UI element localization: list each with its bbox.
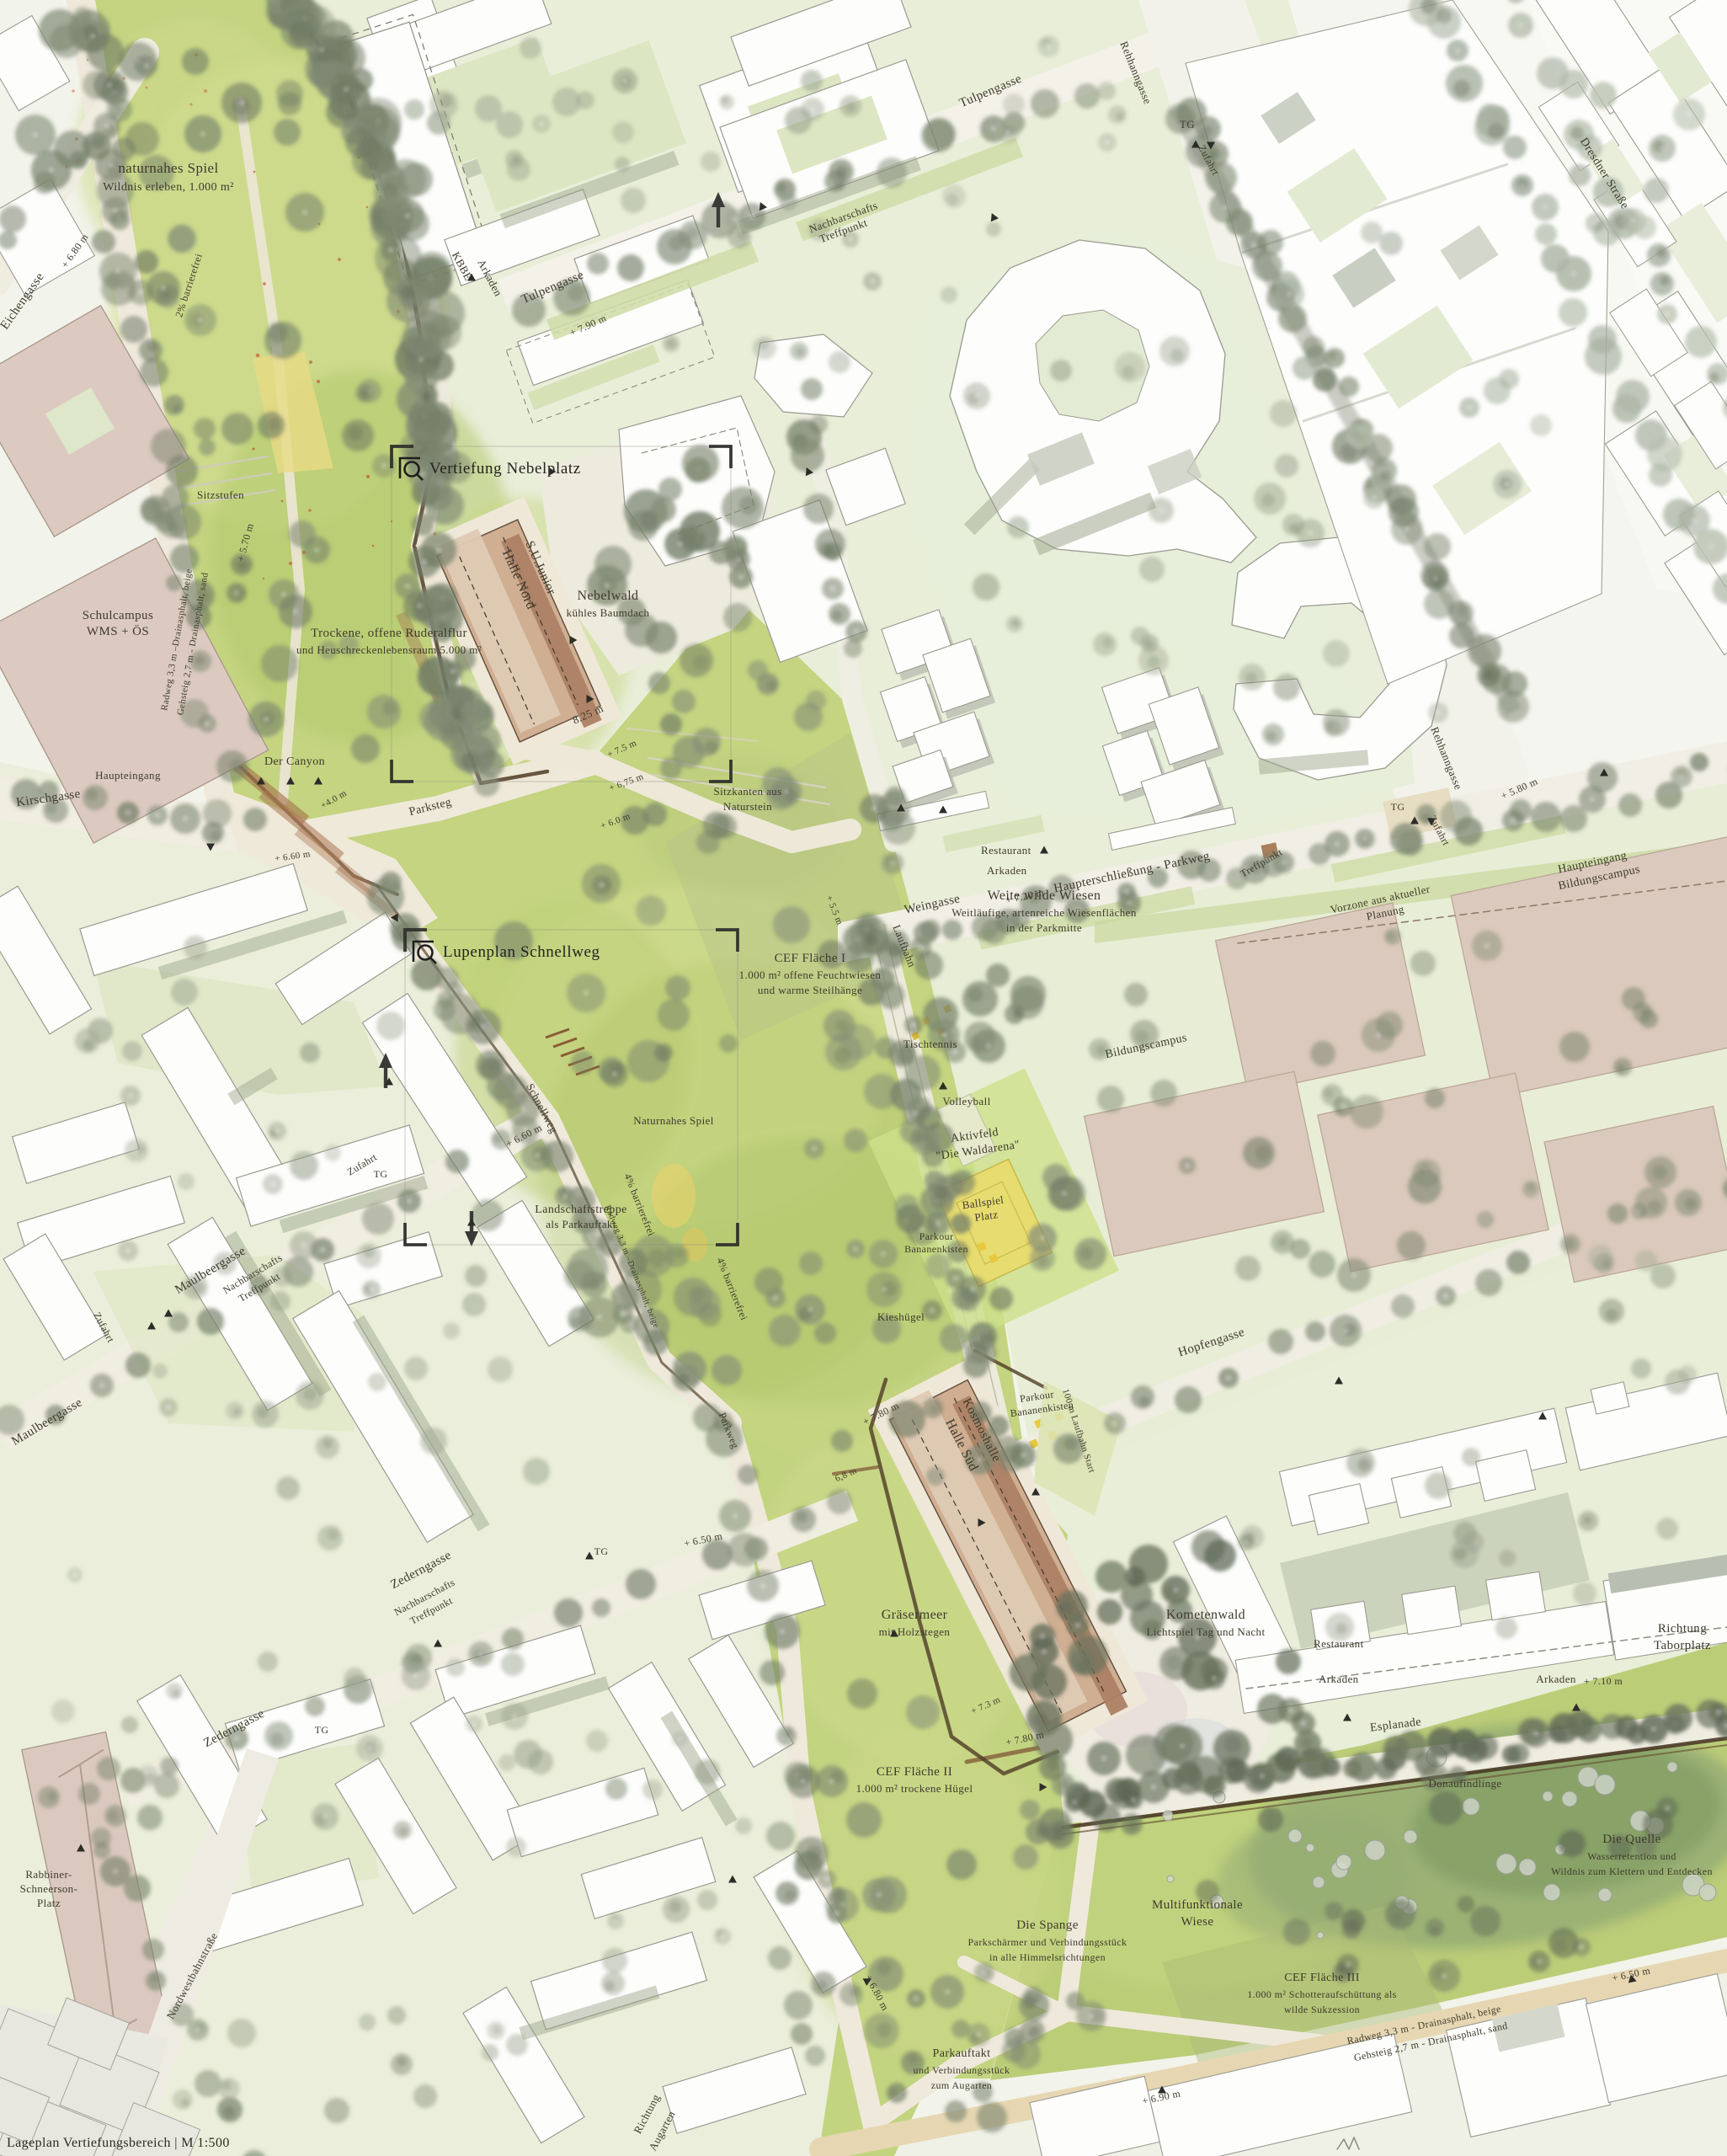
svg-text:wilde Sukzession: wilde Sukzession [1284,2004,1360,2015]
svg-text:und warme Steilhänge: und warme Steilhänge [758,984,862,996]
svg-text:Schneerson-: Schneerson- [20,1882,78,1895]
svg-text:Schulcampus: Schulcampus [83,609,153,622]
svg-text:Multifunktionale: Multifunktionale [1152,1898,1243,1912]
svg-text:Wildnis zum Klettern und Entde: Wildnis zum Klettern und Entdecken [1551,1865,1713,1877]
svg-text:Vertiefung Nebelplatz: Vertiefung Nebelplatz [429,460,581,478]
svg-text:Restaurant: Restaurant [981,844,1031,857]
svg-text:Wildnis erleben, 1.000 m²: Wildnis erleben, 1.000 m² [103,181,234,194]
svg-text:TG: TG [1391,801,1405,813]
svg-text:Donaufindlinge: Donaufindlinge [1428,1777,1501,1790]
svg-text:Naturnahes Spiel: Naturnahes Spiel [633,1114,714,1127]
svg-text:CEF Fläche II: CEF Fläche II [877,1765,952,1779]
svg-text:1.000 m² Schotteraufschüttung: 1.000 m² Schotteraufschüttung als [1247,1988,1396,2000]
svg-text:und Heuschreckenlebensraum 5.0: und Heuschreckenlebensraum 5.000 m² [296,643,482,656]
svg-text:Die Quelle: Die Quelle [1602,1833,1660,1846]
svg-text:Der Canyon: Der Canyon [264,755,325,768]
svg-text:WMS + ÖS: WMS + ÖS [87,624,149,638]
svg-text:Sitzkanten aus: Sitzkanten aus [713,785,781,798]
svg-text:naturnahes Spiel: naturnahes Spiel [118,160,218,176]
svg-text:Parkour: Parkour [919,1230,954,1242]
svg-text:CEF Fläche I: CEF Fläche I [775,952,846,965]
svg-text:Bananenkisten: Bananenkisten [904,1243,968,1255]
svg-text:Kieshügel: Kieshügel [877,1310,925,1323]
svg-text:CEF Fläche III: CEF Fläche III [1284,1972,1360,1984]
svg-text:1.000 m² trockene Hügel: 1.000 m² trockene Hügel [856,1782,973,1795]
svg-text:TG: TG [1180,118,1195,131]
svg-text:+ 7.10 m: + 7.10 m [1584,1675,1623,1687]
svg-text:Weite wilde Wiesen: Weite wilde Wiesen [988,889,1101,903]
svg-text:Wiese: Wiese [1181,1915,1214,1929]
svg-text:1.000 m² offene Feuchtwiesen: 1.000 m² offene Feuchtwiesen [739,969,882,981]
svg-text:Arkaden: Arkaden [1319,1673,1359,1685]
svg-text:in der Parkmitte: in der Parkmitte [1006,921,1082,934]
svg-text:Volleyball: Volleyball [942,1095,990,1107]
svg-text:Lupenplan Schnellweg: Lupenplan Schnellweg [443,943,600,961]
svg-text:Arkaden: Arkaden [1536,1673,1576,1685]
svg-text:Naturstein: Naturstein [723,800,772,813]
svg-text:Gräsermeer: Gräsermeer [882,1608,948,1622]
svg-text:Lageplan Vertiefungsbereich |: Lageplan Vertiefungsbereich | M 1:500 [7,2136,230,2150]
svg-text:Trockene, offene Ruderalflur: Trockene, offene Ruderalflur [311,627,467,640]
svg-text:TG: TG [315,1724,329,1736]
svg-text:Haupteingang: Haupteingang [95,769,161,782]
svg-text:und Verbindungsstück: und Verbindungsstück [914,2064,1010,2076]
svg-text:zum Augarten: zum Augarten [931,2079,992,2091]
svg-text:Parkschärmer und Verbindungsst: Parkschärmer und Verbindungsstück [968,1936,1127,1948]
svg-text:Sitzstufen: Sitzstufen [197,488,244,501]
svg-text:Wasserretention und: Wasserretention und [1587,1850,1676,1862]
svg-text:Weitläufige, artenreiche Wiese: Weitläufige, artenreiche Wiesenflächen [951,906,1137,919]
svg-text:Die Spange: Die Spange [1016,1919,1079,1932]
svg-text:TG: TG [594,1545,609,1557]
svg-text:Nebelwald: Nebelwald [578,589,639,603]
svg-text:Tischtennis: Tischtennis [903,1038,957,1050]
svg-text:Platz: Platz [37,1897,61,1909]
svg-text:Taborplatz: Taborplatz [1654,1639,1711,1652]
svg-text:Lichtspiel Tag und Nacht: Lichtspiel Tag und Nacht [1147,1625,1266,1638]
svg-text:in alle Himmelsrichtungen: in alle Himmelsrichtungen [989,1951,1106,1963]
svg-text:Restaurant: Restaurant [1314,1637,1364,1650]
svg-text:TG: TG [374,1168,388,1180]
svg-text:als Parkauftakt: als Parkauftakt [546,1218,616,1230]
svg-text:Rabbiner-: Rabbiner- [25,1868,72,1881]
svg-text:Parkauftakt: Parkauftakt [933,2047,991,2060]
svg-text:kühles Baumdach: kühles Baumdach [567,606,650,619]
svg-text:Arkaden: Arkaden [987,864,1027,877]
svg-text:Kometenwald: Kometenwald [1166,1608,1245,1622]
svg-text:mit Holzstegen: mit Holzstegen [879,1625,951,1638]
svg-text:Richtung: Richtung [1658,1622,1707,1636]
